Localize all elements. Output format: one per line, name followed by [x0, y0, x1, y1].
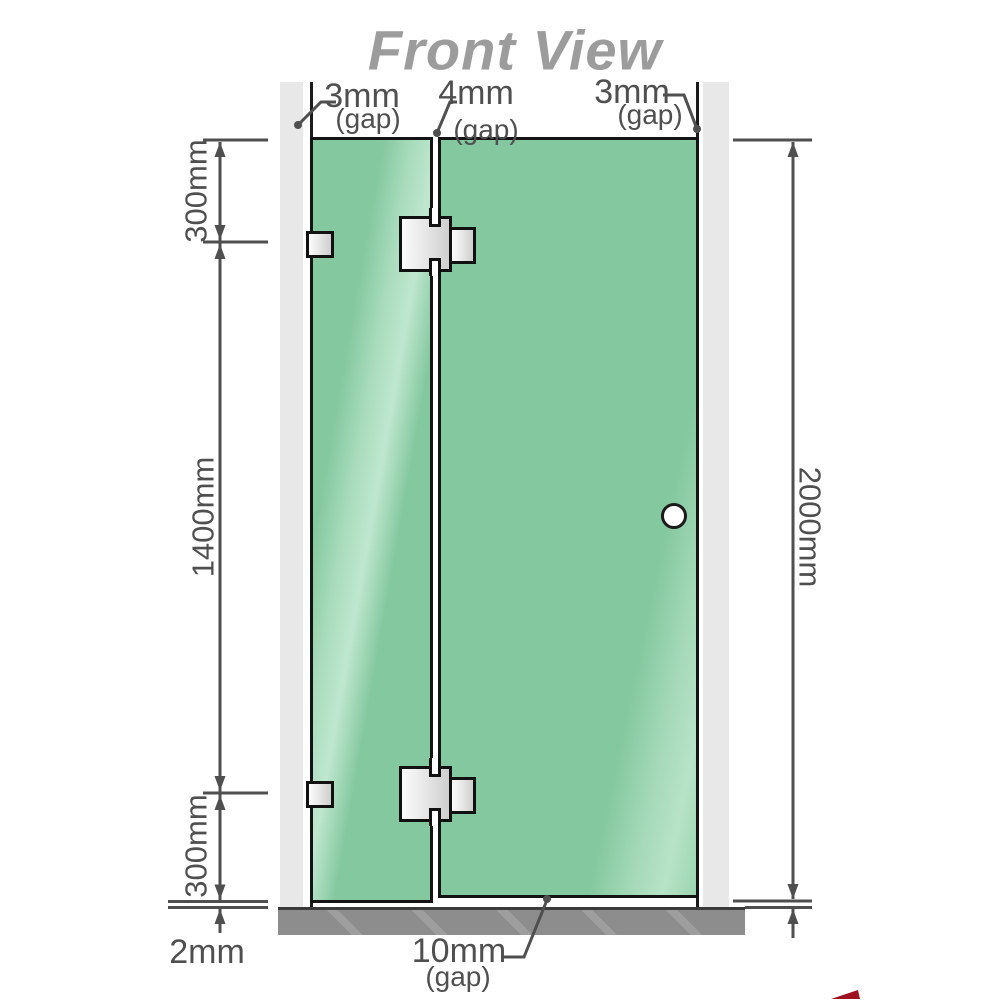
dimension-right-total: 2000mm	[795, 467, 826, 588]
dimension-floor-clearance: 2mm	[169, 935, 245, 969]
hinge-top-left-plate	[399, 216, 452, 272]
dimension-left-top: 300mm	[181, 139, 212, 242]
wall-bracket-top	[306, 231, 334, 258]
hinge-bottom-gap-strip-upper	[429, 758, 441, 777]
label-gap-middle-note: (gap)	[453, 116, 518, 144]
hinge-top-right-plate	[449, 227, 476, 264]
door-glass-panel	[438, 137, 699, 898]
label-gap-middle-value: 4mm	[438, 76, 514, 110]
floor-base	[278, 907, 745, 935]
hinge-bottom-right-plate	[449, 777, 476, 814]
shower-screen-front-view-diagram: Front View	[0, 0, 1000, 1000]
hinge-top-gap-strip-lower	[429, 258, 441, 276]
hinge-bottom-left-plate	[399, 766, 452, 822]
right-wall	[703, 82, 729, 907]
label-gap-bottom-note: (gap)	[425, 963, 490, 991]
label-gap-left-note: (gap)	[335, 105, 400, 133]
door-knob	[661, 503, 687, 529]
label-gap-right-note: (gap)	[617, 101, 682, 129]
hinge-bottom-gap-strip-lower	[429, 808, 441, 826]
wall-bracket-bottom	[306, 781, 334, 808]
dimension-left-bottom: 300mm	[181, 794, 212, 897]
left-wall	[280, 82, 303, 907]
dimension-left-middle: 1400mm	[188, 457, 219, 578]
hinge-top-gap-strip-upper	[429, 208, 441, 227]
corner-watermark-mark	[831, 990, 860, 999]
